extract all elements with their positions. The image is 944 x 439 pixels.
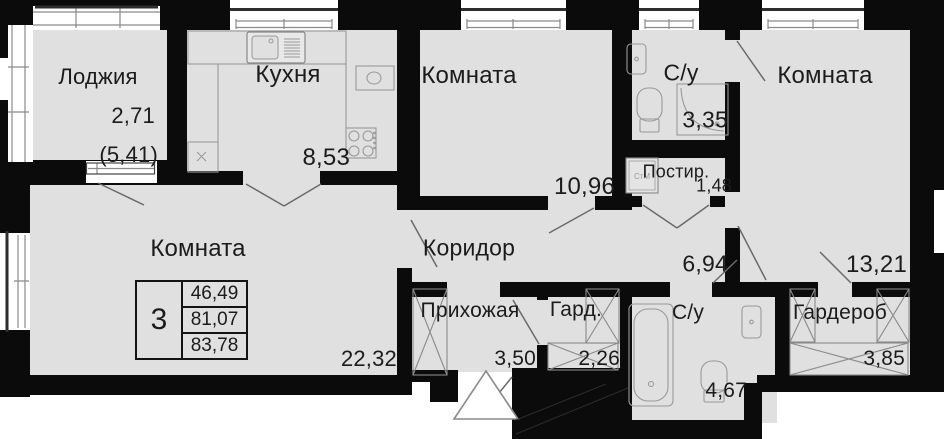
rooms-count: 3 xyxy=(137,282,183,358)
room-area-laundry: 1,48 xyxy=(696,176,732,197)
wall xyxy=(775,287,790,377)
room-label-bathroom-2: С/у xyxy=(672,301,704,325)
room-label-loggia: Лоджия xyxy=(58,64,137,90)
wall xyxy=(612,196,642,207)
area-total: 83,78 xyxy=(183,334,246,358)
wall xyxy=(910,0,944,100)
room-label-corridor: Коридор xyxy=(423,235,515,262)
wall xyxy=(617,140,737,158)
door-opening xyxy=(537,300,548,345)
entrance-triangle xyxy=(454,371,518,419)
wall xyxy=(712,282,818,297)
door-opening xyxy=(447,282,500,297)
window-bedroom-1 xyxy=(461,0,566,30)
window-living-room-left xyxy=(0,233,30,330)
wall xyxy=(412,282,447,297)
wall xyxy=(0,100,8,162)
area-living: 46,49 xyxy=(183,282,246,308)
area-main: 81,07 xyxy=(183,308,246,334)
wall xyxy=(0,0,33,25)
wall xyxy=(910,100,934,392)
room-area-bathroom-2: 4,67 xyxy=(705,379,747,403)
room-area-loggia-total: (5,41) xyxy=(99,142,158,168)
door-opening xyxy=(397,210,412,268)
window-loggia-top xyxy=(33,6,160,30)
room-label-kitchen: Кухня xyxy=(255,61,320,89)
room-area-wardrobe: 3,85 xyxy=(863,347,905,371)
wall xyxy=(0,160,30,233)
room-area-corridor: 6,94 xyxy=(682,251,728,278)
wall xyxy=(500,282,670,297)
window-kitchen xyxy=(230,0,338,30)
room-area-living-room: 22,32 xyxy=(341,346,397,372)
wall xyxy=(934,253,944,392)
room-area-wardrobe-small: 2,26 xyxy=(578,347,620,371)
wall xyxy=(757,375,932,392)
wall xyxy=(412,196,548,210)
room-label-bedroom-1: Комната xyxy=(421,62,516,90)
wall xyxy=(0,375,412,395)
room-area-hallway: 3,50 xyxy=(494,347,536,371)
window-loggia-left xyxy=(8,25,33,162)
door-opening xyxy=(818,282,852,297)
window-bathroom-1 xyxy=(639,0,699,30)
room-area-bathroom-1: 3,35 xyxy=(682,107,728,134)
wall xyxy=(612,0,632,210)
info-box: 3 46,49 81,07 83,78 xyxy=(135,280,248,360)
room-label-hallway: Прихожая xyxy=(421,299,520,323)
wall xyxy=(0,25,8,58)
wall xyxy=(725,25,740,40)
wall xyxy=(934,100,944,190)
wall xyxy=(397,268,412,380)
room-label-wardrobe: Гардероб xyxy=(793,301,887,325)
room-area-bedroom-2: 13,21 xyxy=(846,251,907,279)
wall xyxy=(403,370,430,382)
door-opening xyxy=(670,282,712,297)
room-label-wardrobe-small: Гард. xyxy=(550,298,602,322)
wall xyxy=(430,370,458,402)
window-bedroom-2 xyxy=(762,0,864,30)
wall xyxy=(612,420,757,439)
wall xyxy=(397,0,420,210)
room-area-loggia: 2,71 xyxy=(111,103,155,129)
room-label-living-room: Комната xyxy=(150,235,245,263)
wall xyxy=(167,0,187,185)
door-opening xyxy=(642,196,710,207)
room-area-bedroom-1: 10,96 xyxy=(554,173,615,201)
door-opening xyxy=(725,40,740,82)
room-label-bedroom-2: Комната xyxy=(777,62,872,90)
wall xyxy=(852,282,912,297)
door-opening xyxy=(725,192,740,228)
floor-plan: СтМ Лоджия 2,71 (5,41) Кухня 8,53 Комнат… xyxy=(0,0,944,439)
room-area-kitchen: 8,53 xyxy=(302,144,350,172)
door-opening xyxy=(243,171,320,185)
room-floor-kitchen xyxy=(187,30,397,171)
wall xyxy=(537,287,548,300)
room-label-bathroom-1: С/у xyxy=(663,60,698,87)
